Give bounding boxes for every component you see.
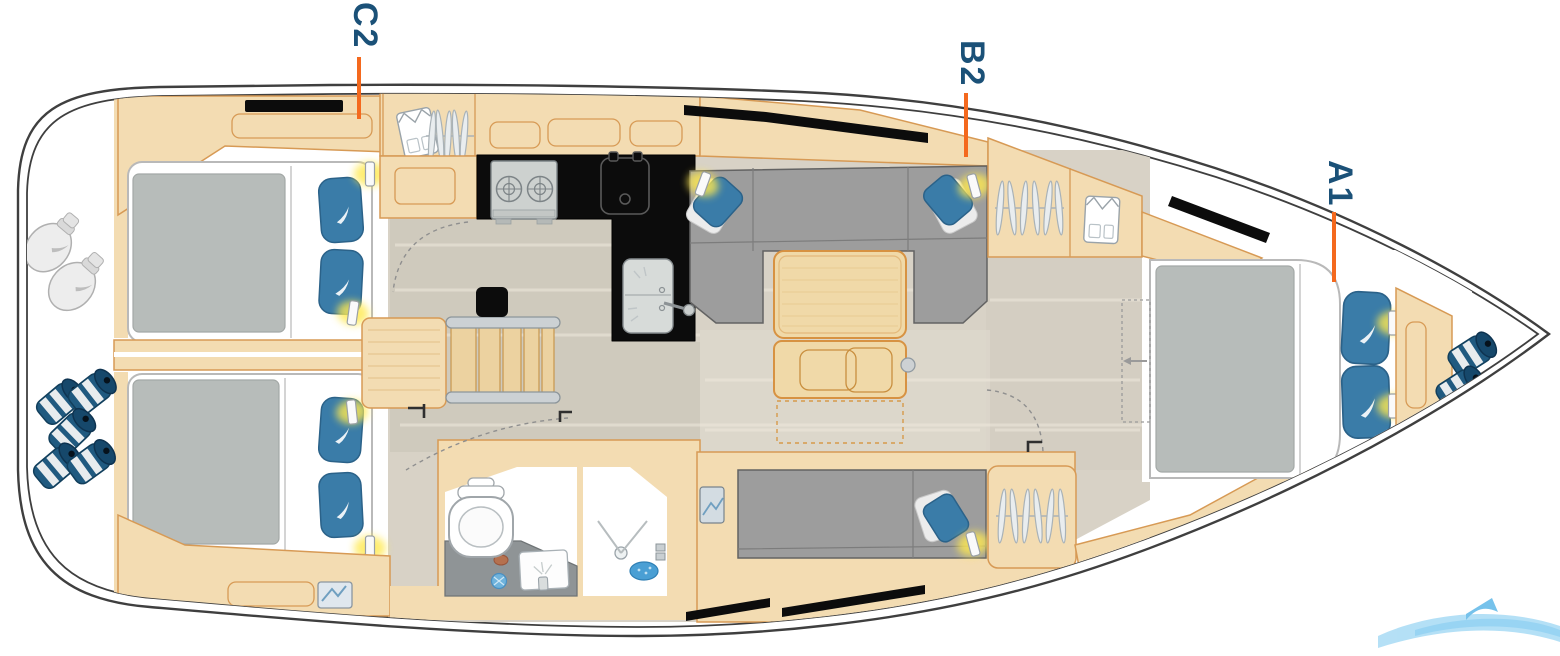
cabin-label-a1-text: A1 [1321,160,1359,207]
mattress [1156,266,1294,472]
cabin-label-a1: A1 [1323,160,1357,207]
leader-line-b2 [964,93,968,157]
cabin-label-c2-text: C2 [346,2,384,49]
picture-frame [318,582,352,608]
mattress [133,380,279,544]
aft-starboard-cabin [114,372,390,628]
yacht-floorplan: C2 B2 A1 [0,0,1560,656]
pillow-icon [318,177,364,244]
stairs-icon [446,317,560,403]
folded-shirt-icon [1084,196,1120,244]
toilet-icon [449,478,513,557]
chart-table [362,318,446,408]
watermark-swoosh-icon [1378,598,1560,648]
leader-line-c2 [357,57,361,119]
aft-port-cabin [114,96,390,342]
stove-icon [491,161,557,224]
forward-cabin [1122,260,1452,478]
hatch-step [476,287,508,317]
washbasin [519,550,569,591]
table-leg [901,358,915,372]
pillow-icon [318,472,363,538]
bath-mat [630,562,658,580]
mattress [133,174,285,332]
aft-cabin-divider [114,340,390,370]
hanging-locker [988,466,1076,568]
cabin-label-b2-text: B2 [953,40,991,87]
leader-line-a1 [1332,212,1336,282]
deck-hatch-icon [245,100,343,112]
cabin-label-c2: C2 [348,2,382,49]
floorplan-drawing [0,0,1560,656]
cabin-label-b2: B2 [955,40,989,87]
